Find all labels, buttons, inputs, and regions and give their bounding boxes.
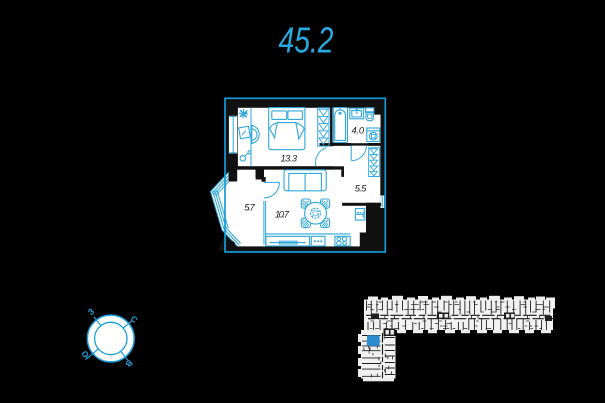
svg-text:5.7: 5.7 [244,203,255,213]
svg-text:10.7: 10.7 [275,210,290,220]
svg-text:5.5: 5.5 [355,184,367,194]
svg-text:З: З [86,306,96,317]
svg-text:С: С [128,313,139,324]
svg-text:4.0: 4.0 [352,126,365,136]
svg-text:В: В [123,358,135,369]
svg-text:13.3: 13.3 [281,154,298,164]
svg-text:45.2: 45.2 [279,20,334,61]
